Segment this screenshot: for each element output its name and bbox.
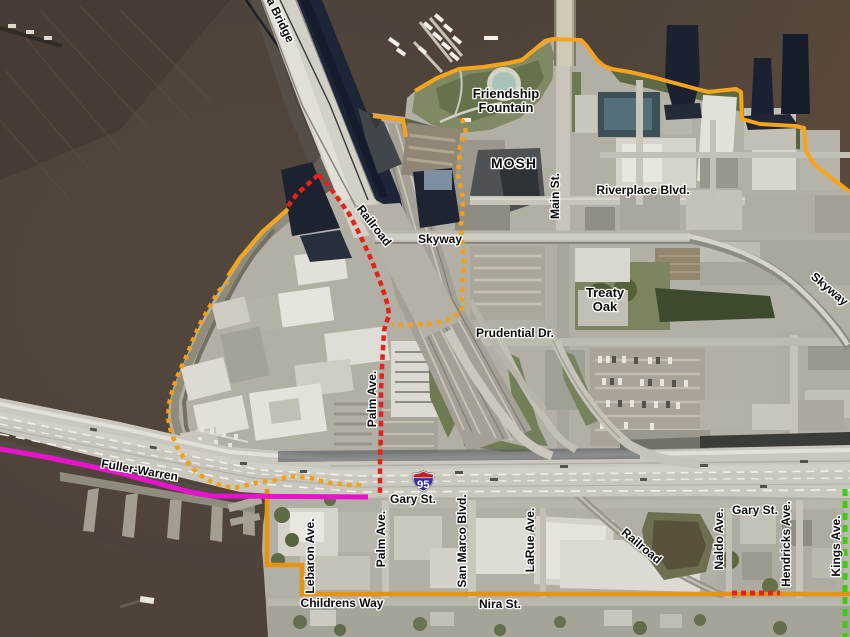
svg-text:Main St.: Main St. — [548, 173, 562, 219]
svg-text:Gary St.: Gary St. — [732, 503, 778, 517]
svg-text:Lebaron Ave.: Lebaron Ave. — [303, 518, 317, 593]
svg-text:LaRue Ave.: LaRue Ave. — [523, 508, 537, 572]
svg-text:Kings Ave.: Kings Ave. — [829, 515, 843, 576]
svg-text:Naldo Ave.: Naldo Ave. — [712, 508, 726, 569]
svg-text:Gary St.: Gary St. — [390, 492, 436, 506]
svg-text:Palm Ave.: Palm Ave. — [365, 371, 379, 427]
svg-text:Fountain: Fountain — [479, 100, 534, 115]
svg-text:MOSH: MOSH — [491, 155, 537, 171]
svg-text:Oak: Oak — [593, 299, 618, 314]
svg-text:Riverplace Blvd.: Riverplace Blvd. — [596, 183, 689, 197]
svg-text:Friendship: Friendship — [473, 86, 540, 101]
svg-text:Skyway: Skyway — [418, 232, 462, 246]
svg-text:San Marco Blvd.: San Marco Blvd. — [455, 494, 469, 587]
svg-text:Prudential Dr.: Prudential Dr. — [476, 326, 554, 340]
svg-text:95: 95 — [417, 479, 430, 491]
svg-text:Childrens Way: Childrens Way — [301, 596, 384, 610]
svg-text:Treaty: Treaty — [586, 285, 625, 300]
svg-text:Hendricks Ave.: Hendricks Ave. — [779, 501, 793, 587]
svg-text:Palm Ave.: Palm Ave. — [374, 511, 388, 567]
svg-text:Nira St.: Nira St. — [479, 597, 521, 611]
